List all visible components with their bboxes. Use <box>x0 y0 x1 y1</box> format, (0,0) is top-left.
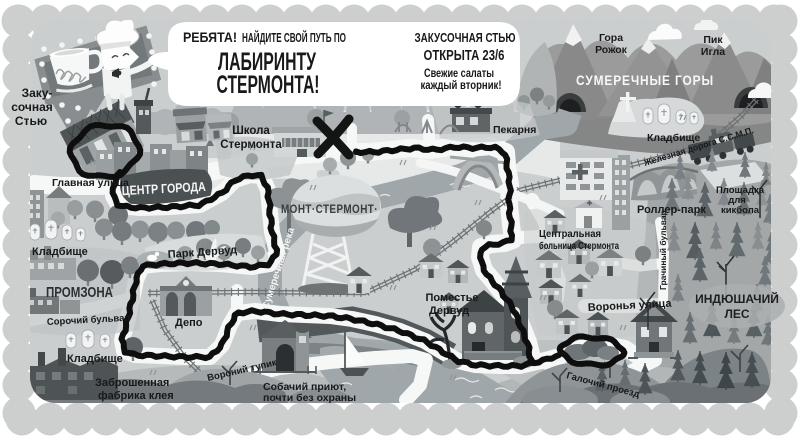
svg-text:Заку-: Заку- <box>22 86 53 100</box>
svg-text:Пекарня: Пекарня <box>493 124 536 136</box>
svg-text:Стермонта: Стермонта <box>220 139 282 151</box>
svg-text:ПРОМЗОНА: ПРОМЗОНА <box>46 284 113 301</box>
svg-text:МОНТ·СТЕРМОНТ·: МОНТ·СТЕРМОНТ· <box>281 204 378 216</box>
svg-text:Кладбище: Кладбище <box>32 246 88 258</box>
svg-text:больница Стермонта: больница Стермонта <box>539 240 619 252</box>
svg-text:Центральная: Центральная <box>539 228 601 240</box>
svg-text:сочная: сочная <box>11 100 53 114</box>
svg-text:ЗАКУСОЧНАЯ СТЬЮ: ЗАКУСОЧНАЯ СТЬЮ <box>415 31 516 45</box>
svg-text:ИНДЮШАЧИЙ: ИНДЮШАЧИЙ <box>695 291 779 306</box>
svg-text:Игла: Игла <box>701 46 725 58</box>
svg-text:кикбола: кикбола <box>721 205 760 216</box>
svg-text:Заброшенная: Заброшенная <box>95 377 169 389</box>
svg-text:Депо: Депо <box>175 317 203 329</box>
svg-text:Стью: Стью <box>15 114 47 128</box>
svg-text:СТЕРМОНТА!: СТЕРМОНТА! <box>217 71 320 99</box>
svg-text:Кладбище: Кладбище <box>67 353 123 365</box>
svg-text:Поместье: Поместье <box>426 292 479 304</box>
svg-text:ЛЕС: ЛЕС <box>724 307 749 321</box>
svg-text:фабрика клея: фабрика клея <box>98 390 174 402</box>
svg-text:ОТКРЫТА 23/6: ОТКРЫТА 23/6 <box>424 48 505 64</box>
svg-text:Главная улица: Главная улица <box>52 177 129 189</box>
svg-text:почти без охраны: почти без охраны <box>263 392 356 404</box>
svg-text:СУМЕРЕЧНЫЕ ГОРЫ: СУМЕРЕЧНЫЕ ГОРЫ <box>576 73 714 88</box>
svg-text:Гора: Гора <box>599 32 623 44</box>
svg-text:Пик: Пик <box>703 34 723 46</box>
svg-text:Школа: Школа <box>232 125 270 137</box>
svg-text:Грачиный бульвар: Грачиный бульвар <box>658 210 668 290</box>
svg-text:РЕБЯТА!: РЕБЯТА! <box>183 29 237 45</box>
svg-text:каждый вторник!: каждый вторник! <box>421 78 502 92</box>
svg-text:Рожок: Рожок <box>595 44 628 56</box>
svg-text:Дервуд: Дервуд <box>429 305 469 317</box>
svg-text:Роллер-парк: Роллер-парк <box>637 204 706 216</box>
svg-text:НАЙДИТЕ СВОЙ ПУТЬ ПО: НАЙДИТЕ СВОЙ ПУТЬ ПО <box>242 30 346 45</box>
